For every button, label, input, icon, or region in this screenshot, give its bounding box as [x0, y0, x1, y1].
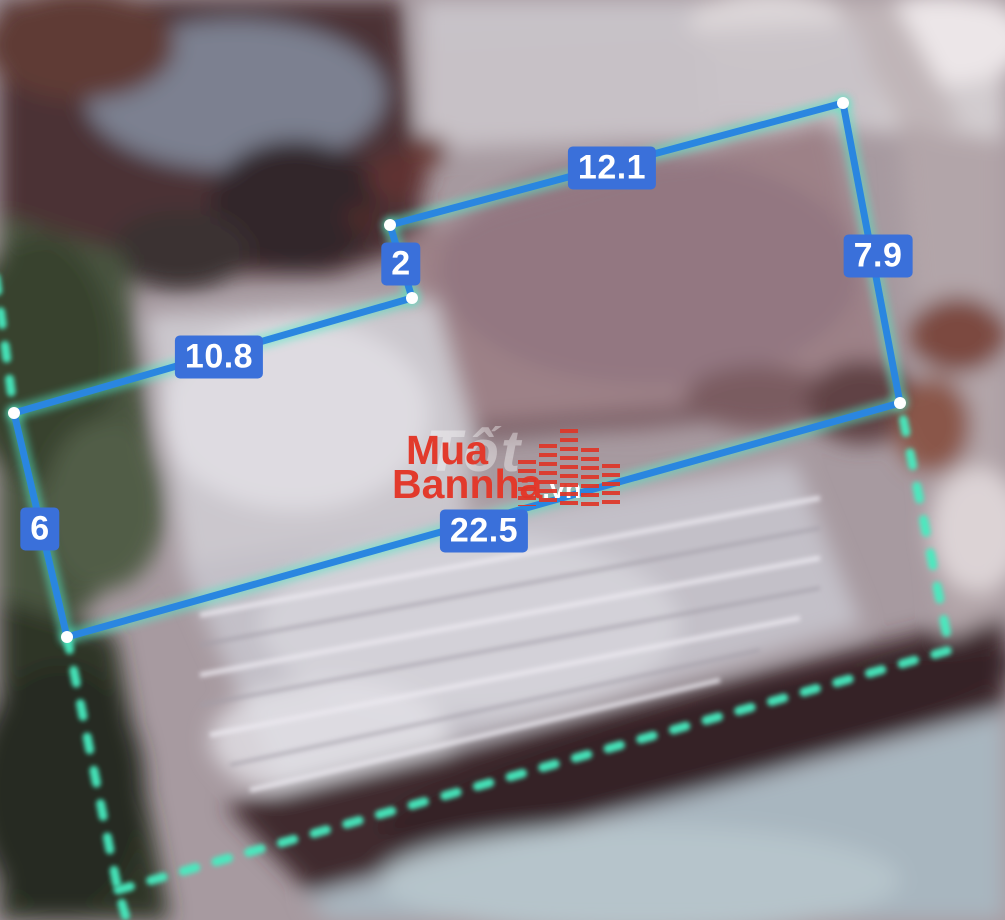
- building-bar: [602, 464, 620, 506]
- vertex-dot: [8, 407, 20, 419]
- vertex-dot: [837, 97, 849, 109]
- measurement-label-12.1: 12.1: [568, 146, 656, 189]
- satellite-measurement-view: 12.1210.8622.57.9 Tốt Mua Bannha.vn: [0, 0, 1005, 920]
- building-bar: [539, 444, 557, 506]
- measurement-label-22.5: 22.5: [440, 509, 528, 552]
- measurement-label-7.9: 7.9: [844, 234, 913, 277]
- measurement-label-6: 6: [20, 507, 59, 550]
- brand-watermark: Tốt Mua Bannha.vn: [390, 428, 650, 512]
- measurement-label-2: 2: [381, 242, 420, 285]
- vertex-dot: [61, 631, 73, 643]
- buildings-icon: [518, 428, 620, 506]
- vertex-dot: [894, 397, 906, 409]
- building-bar: [518, 460, 536, 506]
- building-bar: [581, 448, 599, 506]
- vertex-dot: [406, 292, 418, 304]
- measurement-label-10.8: 10.8: [175, 335, 263, 378]
- vertex-dot: [384, 219, 396, 231]
- building-bar: [560, 429, 578, 506]
